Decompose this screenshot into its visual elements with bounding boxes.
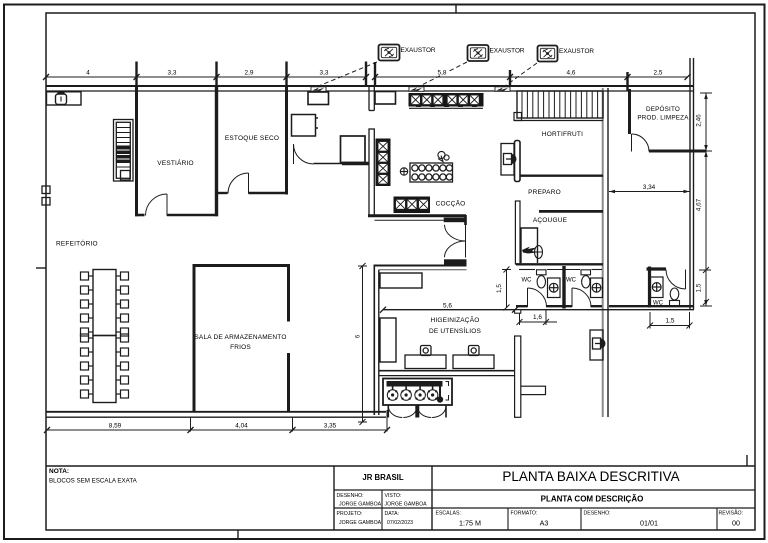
svg-text:8,59: 8,59 (109, 423, 122, 430)
svg-text:SALA DE ARMAZENAMENTO: SALA DE ARMAZENAMENTO (194, 334, 286, 341)
svg-text:1,6: 1,6 (533, 314, 542, 321)
svg-text:PREPARO: PREPARO (528, 189, 561, 196)
svg-text:HORTIFRUTI: HORTIFRUTI (542, 131, 583, 138)
svg-text:4,67: 4,67 (696, 198, 703, 211)
svg-text:PLANTA BAIXA DESCRITIVA: PLANTA BAIXA DESCRITIVA (502, 469, 679, 484)
svg-text:JORGE GAMBOA: JORGE GAMBOA (385, 502, 428, 508)
svg-text:EXAUSTOR: EXAUSTOR (401, 47, 436, 54)
svg-text:JORGE GAMBOA: JORGE GAMBOA (339, 502, 382, 508)
svg-text:1,5: 1,5 (666, 318, 675, 325)
svg-text:4,04: 4,04 (235, 423, 248, 430)
svg-text:01/01: 01/01 (640, 519, 658, 528)
svg-text:AÇOUGUE: AÇOUGUE (533, 217, 568, 224)
svg-text:07/02/2023: 07/02/2023 (387, 520, 413, 526)
svg-text:3,3: 3,3 (320, 70, 329, 77)
svg-text:2,46: 2,46 (696, 114, 703, 127)
svg-text:1:75 M: 1:75 M (459, 519, 481, 528)
svg-text:5,6: 5,6 (443, 303, 452, 310)
svg-text:ESTOQUE SECO: ESTOQUE SECO (225, 135, 279, 142)
svg-text:DATA:: DATA: (385, 511, 400, 517)
svg-text:2,5: 2,5 (654, 70, 663, 77)
svg-text:3,3: 3,3 (168, 70, 177, 77)
svg-text:VISTO:: VISTO: (385, 493, 402, 499)
svg-text:EXAUSTOR: EXAUSTOR (490, 48, 525, 55)
svg-text:DESENHO:: DESENHO: (584, 511, 611, 517)
svg-text:FORMATO:: FORMATO: (511, 511, 538, 517)
svg-text:REVISÃO:: REVISÃO: (719, 510, 744, 517)
svg-text:4,6: 4,6 (567, 70, 576, 77)
svg-text:3,34: 3,34 (643, 184, 656, 191)
svg-text:VESTIÁRIO: VESTIÁRIO (157, 158, 193, 167)
svg-text:PROD. LIMPEZA: PROD. LIMPEZA (637, 115, 689, 122)
svg-text:3,35: 3,35 (324, 423, 337, 430)
svg-text:NOTA:: NOTA: (49, 468, 69, 475)
svg-text:ESCALAS:: ESCALAS: (436, 511, 461, 517)
svg-text:00: 00 (732, 519, 740, 528)
svg-text:DE UTENSÍLIOS: DE UTENSÍLIOS (429, 326, 482, 335)
svg-text:1,5: 1,5 (496, 284, 503, 293)
svg-text:JR BRASIL: JR BRASIL (362, 473, 403, 482)
svg-text:REFEITÓRIO: REFEITÓRIO (56, 239, 98, 248)
svg-text:WC: WC (653, 301, 664, 307)
svg-text:DEPÓSITO: DEPÓSITO (646, 104, 680, 113)
svg-text:5,8: 5,8 (438, 70, 447, 77)
svg-text:DESENHO:: DESENHO: (337, 493, 364, 499)
svg-text:FRIOS: FRIOS (230, 344, 251, 351)
svg-text:JORGE GAMBOA: JORGE GAMBOA (339, 520, 382, 526)
svg-text:A3: A3 (540, 519, 549, 528)
svg-text:COCÇÃO: COCÇÃO (436, 199, 466, 208)
svg-text:2,9: 2,9 (245, 70, 254, 77)
svg-text:PLANTA COM DESCRIÇÃO: PLANTA COM DESCRIÇÃO (541, 495, 644, 504)
svg-text:WC: WC (566, 278, 577, 284)
svg-text:EXAUSTOR: EXAUSTOR (559, 48, 594, 55)
svg-text:1,5: 1,5 (696, 283, 703, 292)
svg-text:HIGEINIZAÇÃO: HIGEINIZAÇÃO (431, 315, 480, 324)
svg-text:6: 6 (355, 334, 362, 338)
svg-text:4: 4 (86, 70, 90, 77)
svg-text:BLOCOS SEM ESCALA EXATA: BLOCOS SEM ESCALA EXATA (49, 478, 138, 485)
svg-text:WC: WC (522, 278, 533, 284)
svg-text:PROJETO:: PROJETO: (337, 511, 363, 517)
